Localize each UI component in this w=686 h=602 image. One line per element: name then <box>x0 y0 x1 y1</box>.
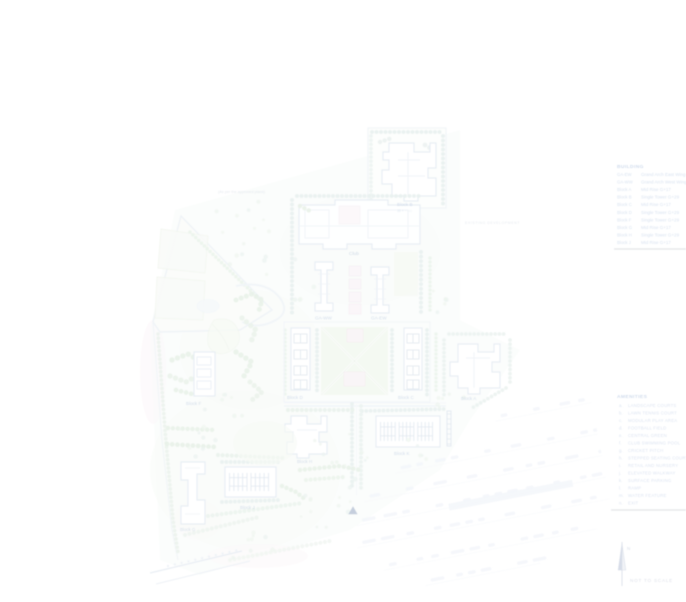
svg-text:Mid Rise G+17: Mid Rise G+17 <box>641 225 671 230</box>
svg-text:Block K: Block K <box>394 451 411 456</box>
svg-text:STEPPED SEATING COURT: STEPPED SEATING COURT <box>628 456 686 461</box>
svg-text:a.: a. <box>619 403 623 408</box>
svg-text:GA-WW: GA-WW <box>315 316 333 321</box>
svg-text:FOOTBALL FIELD: FOOTBALL FIELD <box>628 426 666 431</box>
svg-text:GA-EW: GA-EW <box>617 172 633 177</box>
svg-text:EXISTING DEVELOPMENT: EXISTING DEVELOPMENT <box>465 221 520 225</box>
svg-text:LANDSCAPE COURTS: LANDSCAPE COURTS <box>628 403 677 408</box>
svg-text:EXIT: EXIT <box>628 501 639 506</box>
svg-text:Block G: Block G <box>617 225 633 230</box>
svg-text:Single Tower G+29: Single Tower G+29 <box>641 195 680 200</box>
svg-text:d.: d. <box>619 426 623 431</box>
svg-text:RAMP: RAMP <box>628 486 641 491</box>
svg-text:NOT TO SCALE: NOT TO SCALE <box>630 578 673 583</box>
svg-text:Mid Rise G+17: Mid Rise G+17 <box>641 240 671 245</box>
svg-text:CLUB SWIMMING POOL: CLUB SWIMMING POOL <box>628 441 681 446</box>
svg-text:e.: e. <box>619 433 623 438</box>
svg-text:CENTRAL GREEN: CENTRAL GREEN <box>628 433 667 438</box>
svg-text:Block D: Block D <box>617 210 632 215</box>
svg-text:j.: j. <box>618 471 621 476</box>
svg-text:Mid Rise G+17: Mid Rise G+17 <box>641 187 671 192</box>
svg-text:Block F: Block F <box>186 401 202 406</box>
svg-text:g.: g. <box>619 448 623 453</box>
svg-text:Grand Arch East Wing: Grand Arch East Wing <box>641 172 686 177</box>
svg-text:m.: m. <box>619 493 624 498</box>
svg-text:k.: k. <box>619 478 622 483</box>
svg-text:c.: c. <box>619 418 622 423</box>
svg-text:Block C: Block C <box>398 395 415 400</box>
svg-text:n.: n. <box>619 501 623 506</box>
svg-text:Block A: Block A <box>461 396 477 401</box>
svg-text:CRICKET PITCH: CRICKET PITCH <box>628 448 663 453</box>
svg-text:i.: i. <box>619 463 621 468</box>
svg-text:35 + ·· □□: 35 + ·· □□ <box>397 209 412 213</box>
svg-text:Block F: Block F <box>617 217 632 222</box>
svg-text:Block C: Block C <box>617 202 632 207</box>
svg-text:RETAIL AND NURSERY: RETAIL AND NURSERY <box>628 463 678 468</box>
svg-text:Single Tower G+29: Single Tower G+29 <box>641 217 680 222</box>
svg-text:l.: l. <box>619 486 621 491</box>
svg-text:f.: f. <box>619 441 621 446</box>
svg-text:Block G: Block G <box>180 527 196 532</box>
svg-text:Block D: Block D <box>287 395 304 400</box>
svg-text:MODULAR PLAY AREA: MODULAR PLAY AREA <box>628 418 677 423</box>
svg-text:h.: h. <box>619 456 623 461</box>
svg-text:Block J: Block J <box>240 505 255 510</box>
svg-text:ELEVATED WALKWAY: ELEVATED WALKWAY <box>628 471 676 476</box>
svg-text:GA-EW: GA-EW <box>371 316 387 321</box>
svg-text:Block H: Block H <box>297 459 312 464</box>
svg-text:SURFACE PARKING: SURFACE PARKING <box>628 478 672 483</box>
svg-text:Single Tower G+29: Single Tower G+29 <box>641 232 680 237</box>
svg-text:(As per the approved plans): (As per the approved plans) <box>218 190 266 194</box>
svg-text:GA-WW: GA-WW <box>617 180 634 185</box>
svg-text:b.: b. <box>619 411 623 416</box>
svg-text:Mid Rise G+17: Mid Rise G+17 <box>641 202 671 207</box>
svg-text:Club: Club <box>349 251 359 257</box>
svg-text:Block B: Block B <box>617 195 632 200</box>
svg-text:Block B: Block B <box>397 202 413 207</box>
svg-text:Block A: Block A <box>617 187 631 192</box>
svg-text:BUILDING: BUILDING <box>617 164 644 170</box>
svg-text:Single Tower G+29: Single Tower G+29 <box>641 210 680 215</box>
svg-text:Grand Arch West Wing: Grand Arch West Wing <box>641 180 686 185</box>
svg-text:Block H: Block H <box>617 232 632 237</box>
svg-text:AMENITIES: AMENITIES <box>617 394 648 400</box>
svg-text:Block J: Block J <box>617 240 631 245</box>
svg-text:N: N <box>627 546 630 551</box>
svg-text:WATER FEATURE: WATER FEATURE <box>628 493 667 498</box>
svg-text:LAWN TENNIS COURT: LAWN TENNIS COURT <box>628 411 677 416</box>
